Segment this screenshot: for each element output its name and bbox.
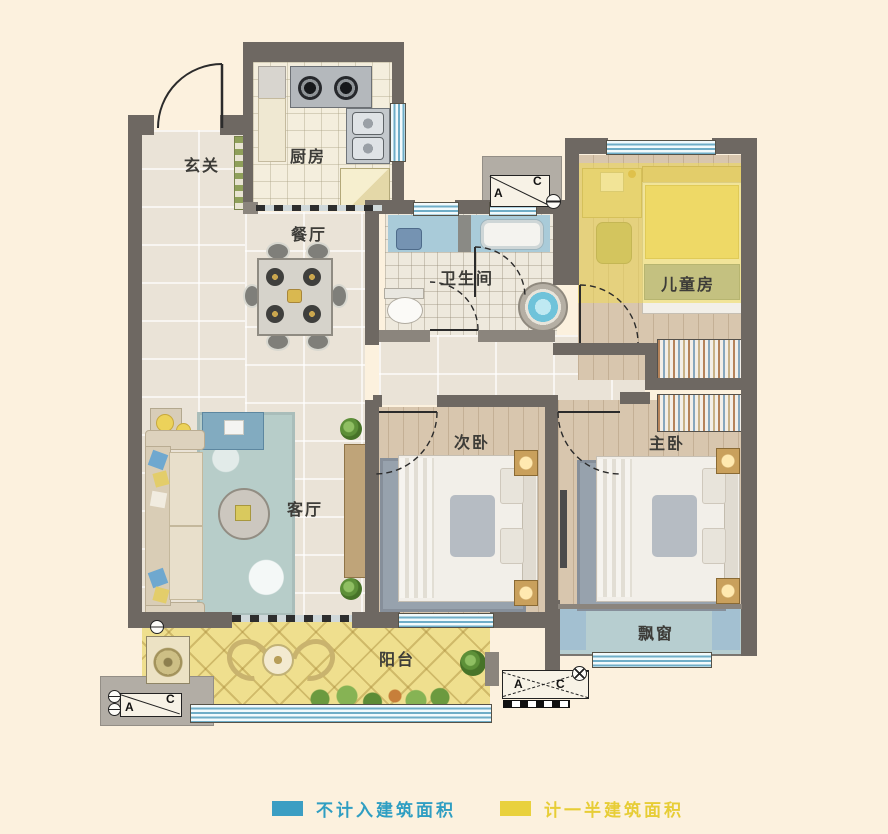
wall-segment [378,612,400,628]
table-centerpiece [287,289,302,303]
second-bedroom-window [398,613,494,628]
wall-segment [565,138,608,154]
room-label-living: 客厅 [287,496,323,520]
tv-console [344,444,366,578]
wall-segment [243,42,403,62]
place-setting [303,268,321,286]
room-label-balcony: 阳台 [379,646,415,670]
section-letter: A [125,700,134,714]
balcony-window-glass [190,704,492,723]
nightstand [716,578,740,604]
section-symbol-icon [108,690,121,703]
potted-plant [340,578,362,600]
room-label-second-bedroom: 次卧 [454,429,490,453]
wall-segment [352,612,378,628]
half-area-overlay-kids [578,163,741,303]
wall-segment [437,395,558,407]
sofa-seat [169,452,203,526]
section-symbol-icon [546,194,561,209]
wall-segment [128,612,232,628]
bathroom-window [413,202,459,216]
bed-throw [450,495,495,557]
room-label-kids: 儿童房 [661,271,715,295]
place-setting [266,305,284,323]
wall-segment [379,330,430,342]
sofa-seat [169,526,203,600]
nightstand [716,448,740,474]
wall-segment [128,115,142,628]
section-letter: C [166,692,175,706]
place-setting [303,305,321,323]
wall-segment [545,400,558,618]
bed-pillow [702,528,726,564]
section-letter: A [514,677,523,691]
coffee-table-tray [235,505,251,521]
balcony-plant [460,650,486,676]
vanity-sink [396,228,422,250]
sink-basin [352,137,384,160]
nightstand [514,580,538,606]
stove-burner [298,76,322,100]
wall-segment [365,400,379,628]
wall-segment [392,42,404,105]
wall-segment [620,392,650,404]
kids-room-window [606,140,716,155]
kids-wardrobe [657,339,744,379]
section-letter: C [533,174,542,188]
wall-segment [478,330,555,342]
place-setting [266,268,284,286]
stove-burner [334,76,358,100]
potted-plant [340,418,362,440]
kitchen-window [390,103,406,162]
room-label-dining: 餐厅 [291,221,327,245]
wall-segment [553,343,645,355]
room-label-entry: 玄关 [184,152,220,176]
legend-label: 不计入建筑面积 [316,796,456,821]
sink-basin [352,112,384,135]
scale-bar [503,700,570,708]
bed-throw [652,495,697,557]
sofa-pillow-white [150,491,167,508]
kitchen-counter [258,98,286,162]
bay-window-pad-right [712,608,740,650]
bay-window-glass [592,652,712,668]
toilet [387,297,423,324]
wall-segment [545,600,560,670]
wall-segment [553,200,579,285]
wall-segment [365,200,379,345]
drain-symbol-icon [150,620,164,634]
room-label-kitchen: 厨房 [290,143,326,167]
wall-segment [373,395,382,407]
legend-item-half-counted: 计一半建筑面积 [500,796,684,821]
bed-blanket-folds [400,458,434,598]
bed-blanket-folds [598,459,632,597]
wall-segment [220,115,253,135]
legend-label: 计一半建筑面积 [544,796,684,821]
section-letter: A [494,186,503,200]
room-label-bathroom: 卫生间 [440,265,494,289]
balcony-sliding-door [232,615,352,622]
section-letter: C [556,677,565,691]
room-label-bay-window: 飘窗 [638,620,674,644]
wall-segment [645,378,745,390]
section-symbol-x-icon [572,666,587,681]
wall-segment [379,200,415,214]
wall-tv [560,490,567,568]
wall-segment [455,200,491,214]
legend-swatch-yellow [500,801,531,816]
bed-pillow [500,528,524,564]
wall-segment [741,138,757,656]
nightstand [514,450,538,476]
bay-window-pad-left [558,608,586,650]
room-label-master-bedroom: 主卧 [649,430,685,454]
shower-tub [518,282,568,332]
kitchen-sliding-door [256,205,382,211]
legend-swatch-blue [272,801,303,816]
kitchen-cabinet [258,66,286,100]
fountain [262,644,294,676]
sideboard-books [224,420,244,435]
legend-item-not-counted: 不计入建筑面积 [272,796,456,821]
wall-segment [558,604,742,609]
washing-machine [146,636,190,684]
bathroom-partition [458,215,471,252]
bed-headboard [522,456,536,599]
section-symbol-icon [108,703,121,716]
floor-plan: 玄关 厨房 餐厅 卫生间 儿童房 次卧 主卧 客厅 阳台 飘窗 A C A C … [0,0,888,834]
bathtub [480,219,544,250]
master-wardrobe [657,394,744,432]
wall-segment [485,652,499,686]
